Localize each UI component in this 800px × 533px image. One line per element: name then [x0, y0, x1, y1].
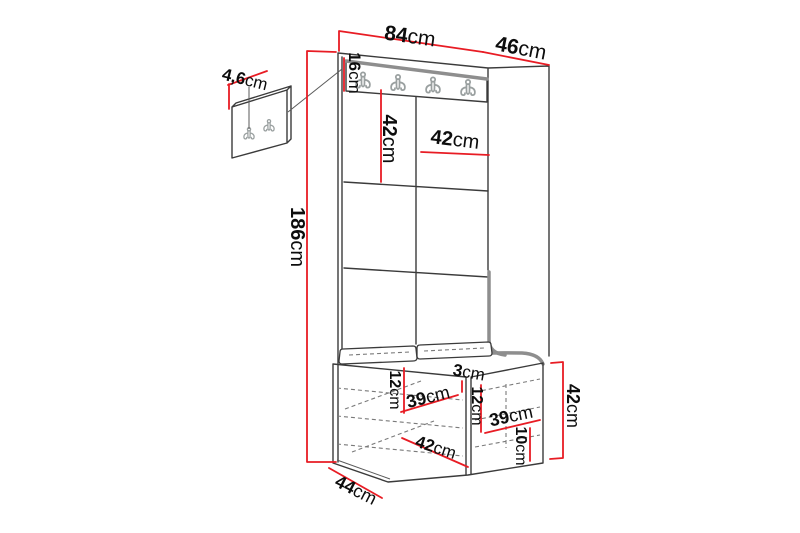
- dimension-label-panel-height-42: 42cm: [378, 115, 400, 164]
- dimension-label-bench-bottom-10: 10cm: [513, 426, 530, 465]
- coat-hook-icon: [426, 77, 440, 92]
- callout-connector-line: [288, 69, 342, 112]
- hook-board: [346, 61, 487, 102]
- dimension-line-42-panel-width: [421, 152, 489, 155]
- dimension-label-bench-left-12: 12cm: [387, 370, 404, 409]
- seat-cushion: [417, 342, 492, 359]
- dimension-label-bench-height-42: 42cm: [563, 384, 583, 428]
- coat-hook-icon: [391, 75, 405, 90]
- panel-side-edge: [489, 272, 505, 355]
- dimension-label-bench-mid-12: 12cm: [469, 386, 486, 425]
- dimension-label-panel-width-42: 42cm: [429, 126, 480, 154]
- dimension-label-width-84: 84cm: [383, 21, 437, 51]
- dimension-line-42-bench-height: [550, 362, 563, 459]
- dimension-label-bench-left-39: 39cm: [404, 382, 452, 412]
- dimension-label-total-height-186: 186cm: [286, 207, 308, 267]
- dimension-label-detail-hook-4-6: 4,6cm: [220, 64, 270, 94]
- dimension-label-divider-3: 3cm: [452, 360, 487, 384]
- coat-hook-icon: [244, 128, 254, 139]
- coat-hook-icon: [461, 80, 475, 95]
- dimension-label-bench-diag-42: 42cm: [413, 432, 458, 463]
- furniture-dimension-diagram: 84cm46cm16cm4,6cm42cm42cm186cm12cm39cm3c…: [0, 0, 800, 533]
- dimension-label-depth-46: 46cm: [494, 32, 549, 64]
- diagram-canvas: 84cm46cm16cm4,6cm42cm42cm186cm12cm39cm3c…: [0, 0, 800, 533]
- dimension-line-186: [307, 51, 336, 462]
- coat-hook-icon: [264, 120, 274, 131]
- dimension-label-hookboard-height-16: 16cm: [346, 52, 365, 94]
